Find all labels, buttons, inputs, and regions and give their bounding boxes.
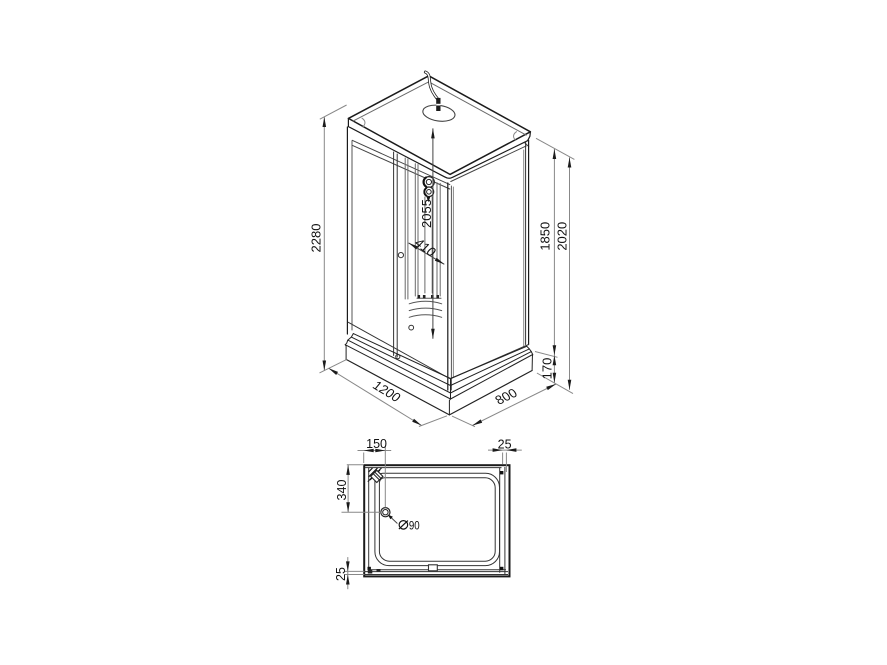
svg-text:2020: 2020 (555, 222, 570, 251)
svg-text:25: 25 (498, 437, 512, 451)
svg-text:2055: 2055 (419, 199, 434, 228)
svg-text:2280: 2280 (309, 224, 324, 253)
svg-text:170: 170 (540, 358, 555, 380)
svg-text:25: 25 (334, 567, 348, 581)
svg-text:340: 340 (335, 480, 349, 501)
svg-text:1850: 1850 (537, 222, 552, 251)
svg-text:90: 90 (409, 519, 420, 532)
svg-text:150: 150 (366, 437, 387, 451)
